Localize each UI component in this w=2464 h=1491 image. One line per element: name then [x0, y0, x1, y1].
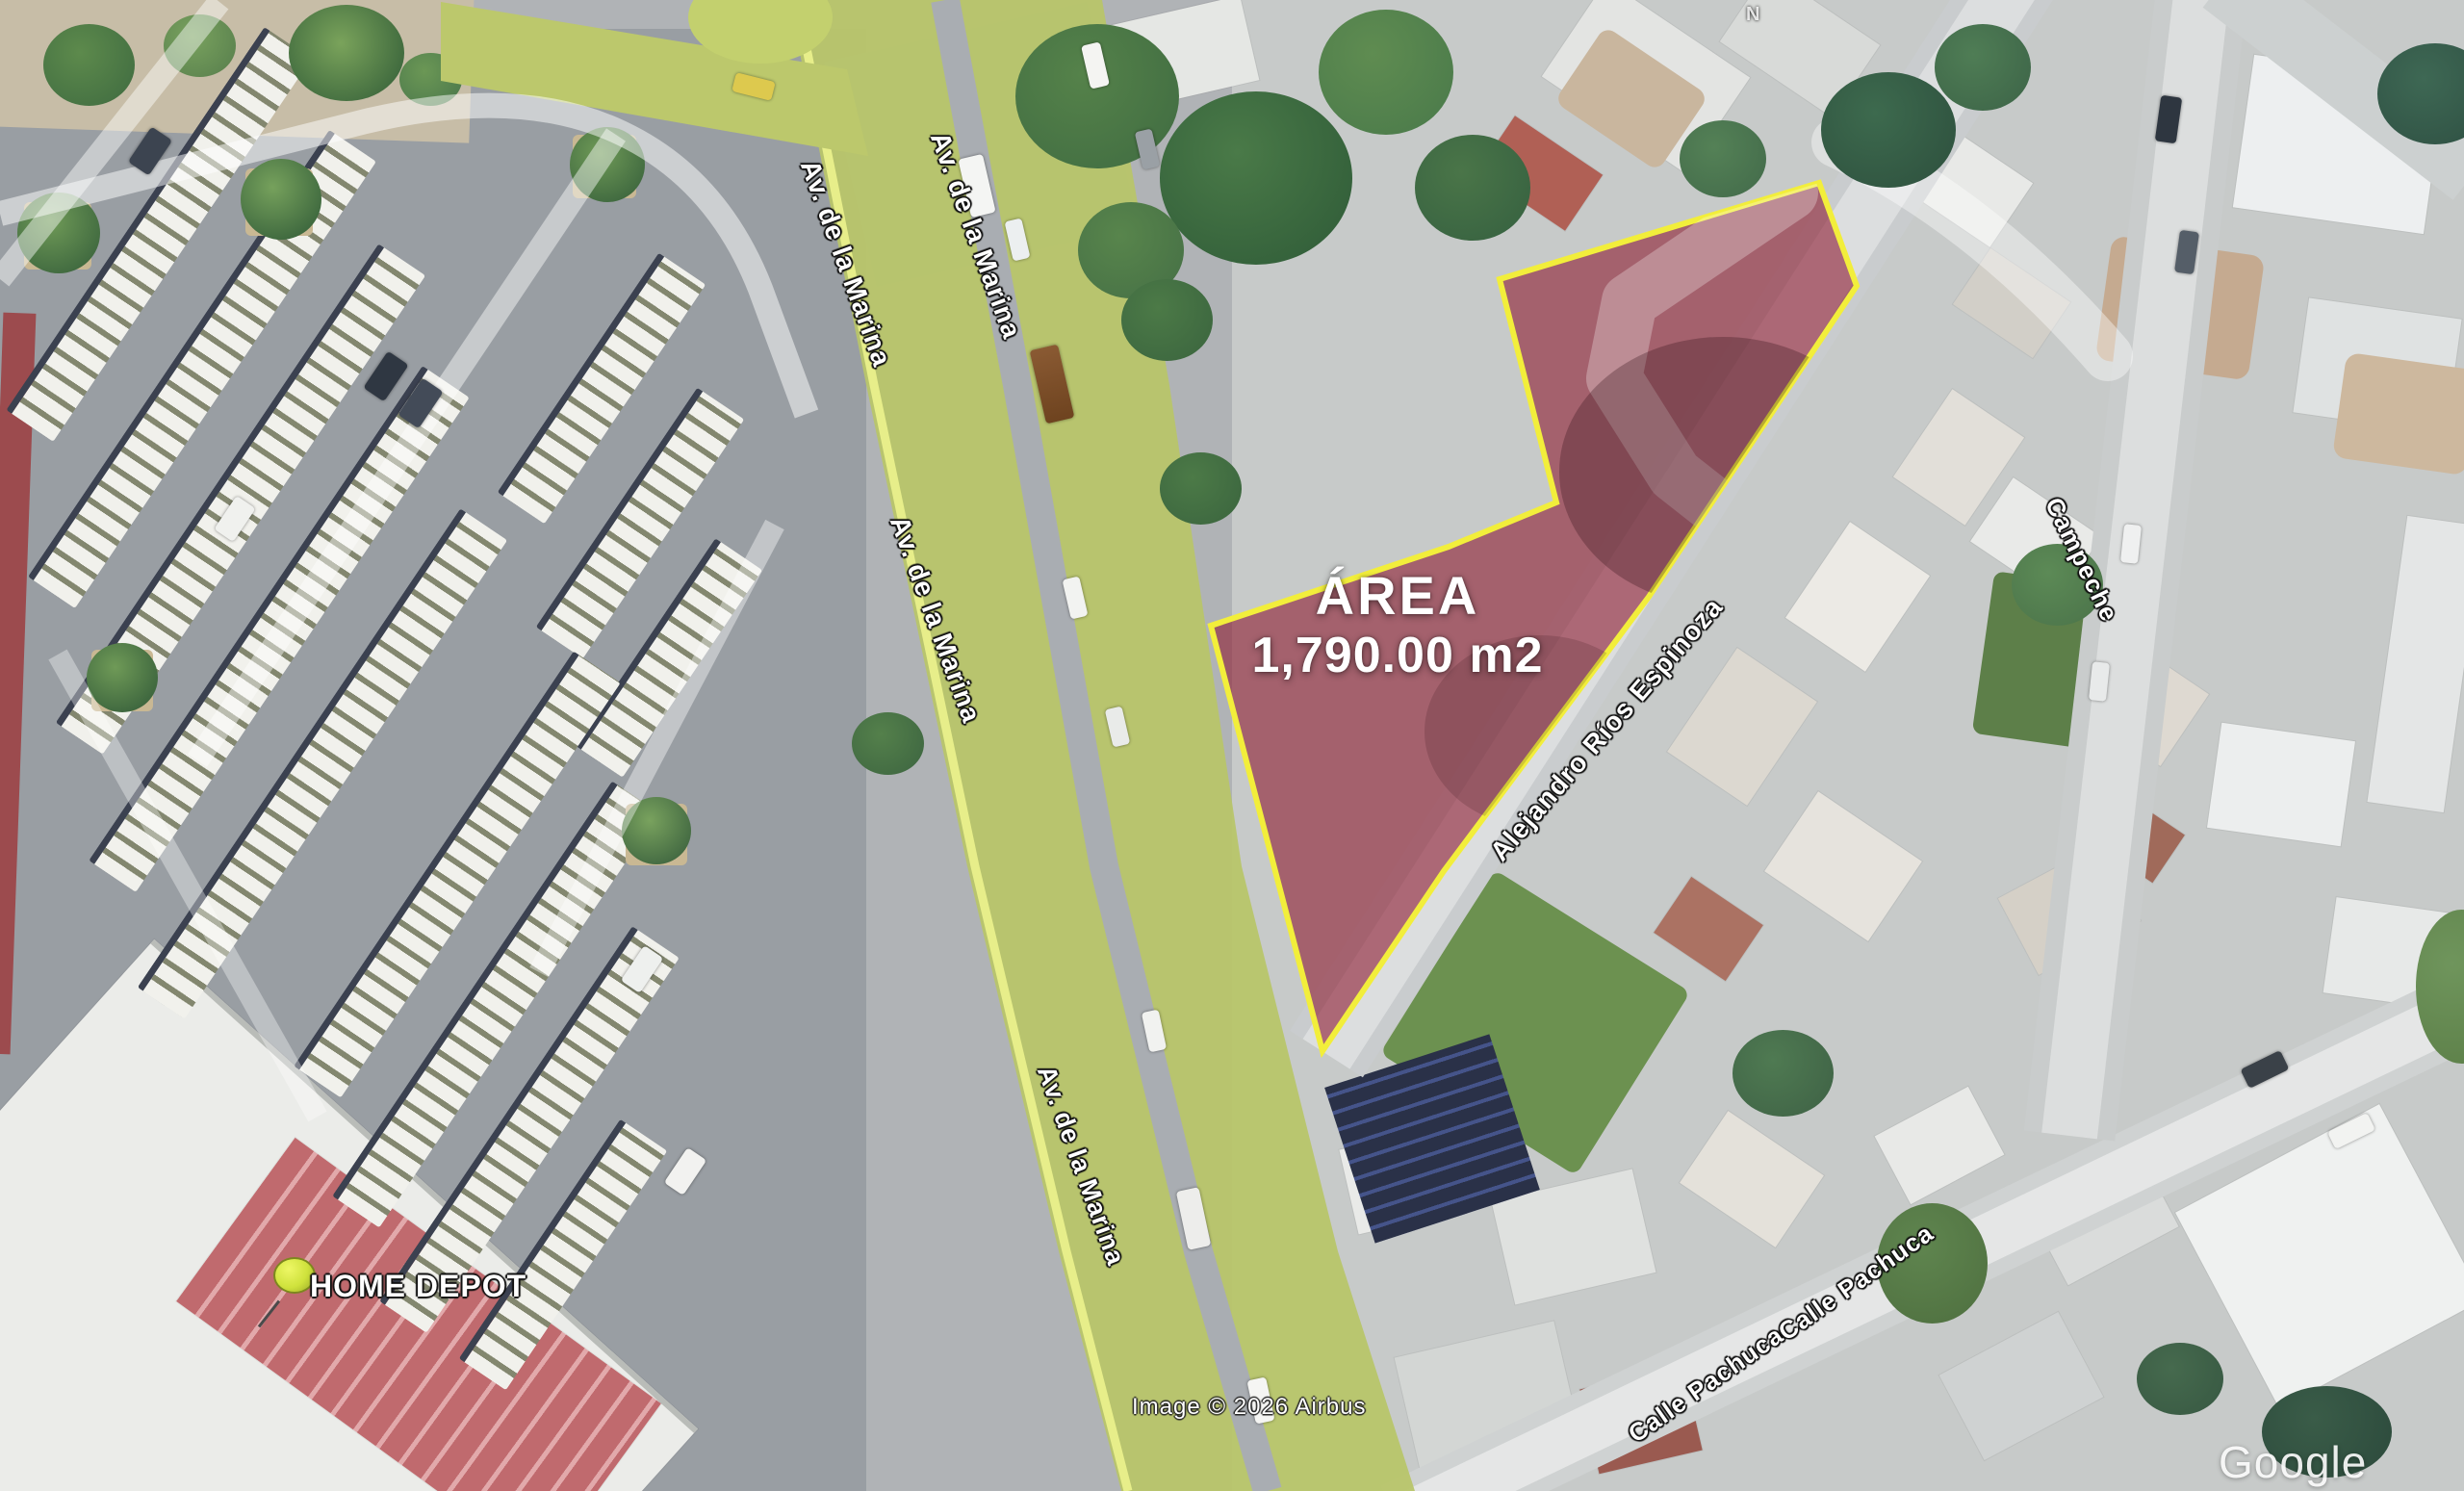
imagery-attribution: Image © 2026 Airbus — [1132, 1394, 1366, 1421]
parcel-area-title: ÁREA — [1224, 566, 1571, 626]
google-earth-map-view[interactable]: Av. de la Marina Av. de la Marina Av. de… — [0, 0, 2464, 1491]
compass-north-label[interactable]: N — [1746, 4, 1759, 26]
parcel-overlay — [0, 0, 2464, 1491]
google-earth-watermark: Google Earth — [2219, 1436, 2464, 1491]
parcel-area-label: ÁREA 1,790.00 m2 — [1224, 566, 1571, 685]
parcel-area-value: 1,790.00 m2 — [1224, 626, 1571, 685]
home-depot-label[interactable]: HOME DEPOT — [310, 1269, 526, 1304]
